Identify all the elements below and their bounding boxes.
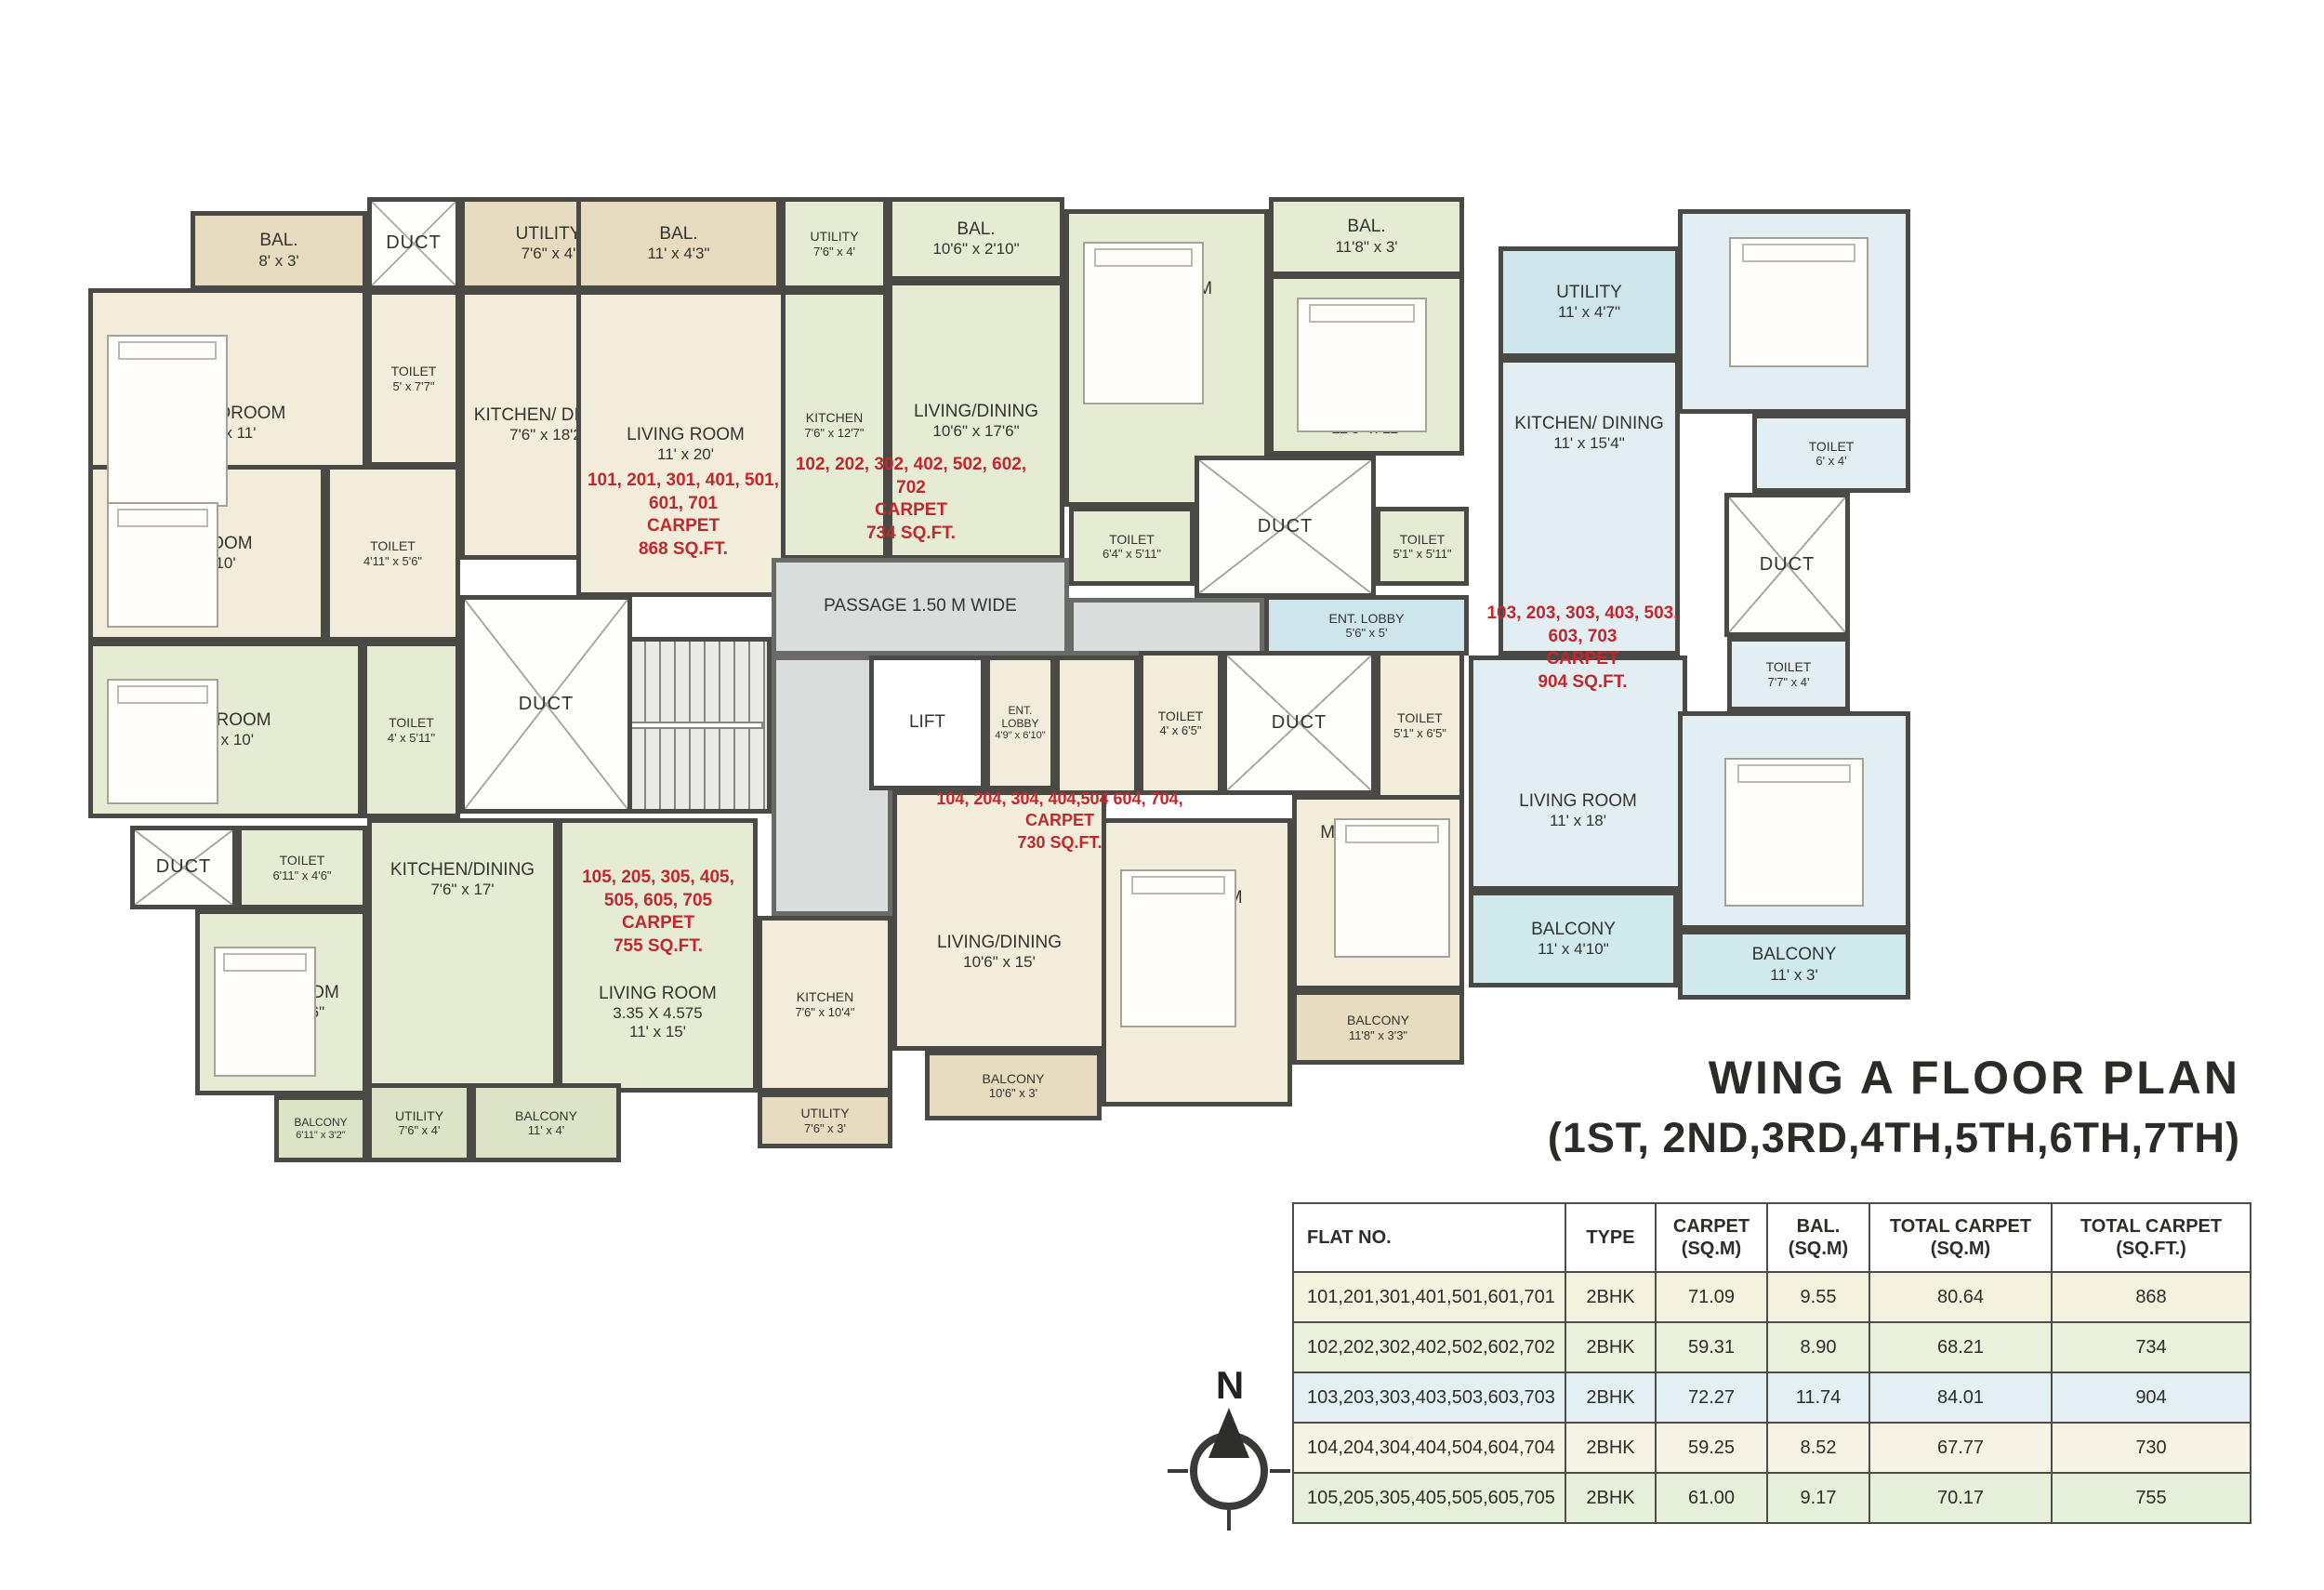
table-cell: 2BHK [1565, 1322, 1656, 1372]
room-dims: 7'6" x 17' [430, 881, 494, 899]
table-cell: 8.52 [1767, 1423, 1869, 1473]
bed-icon [1334, 818, 1450, 958]
table-row: 101,201,301,401,501,601,7012BHK71.099.55… [1293, 1272, 2251, 1322]
room-dims: 4'11" x 5'6" [363, 554, 422, 568]
room-toilet-104b: TOILET5'1" x 6'5" [1376, 651, 1464, 800]
room-dims: 10'6" x 3' [989, 1086, 1037, 1100]
room-label: DUCT [1272, 712, 1327, 735]
room-label: LIVING/DINING [914, 402, 1038, 422]
room-label: UTILITY [800, 1106, 849, 1121]
room-dims: 7'6" x 4' [399, 1123, 441, 1137]
room-lift: LIFT [869, 656, 985, 790]
room-label: UTILITY [1556, 283, 1622, 303]
room-toilet-101b: TOILET4'11" x 5'6" [325, 465, 460, 642]
room-label: BALCONY [294, 1116, 347, 1129]
flat-area-table: FLAT NO. TYPE CARPET(SQ.M) BAL.(SQ.M) TO… [1292, 1202, 2251, 1524]
bed-icon [1297, 298, 1427, 432]
floor-plan: BAL.8' x 3' DUCT UTILITY7'6" x 4' BAL.11… [0, 0, 2324, 1590]
header-line1: TOTAL CARPET [1890, 1216, 2031, 1237]
table-cell: 80.64 [1869, 1272, 2052, 1322]
table-cell: 904 [2052, 1372, 2251, 1423]
room-label: TOILET [1400, 532, 1446, 548]
room-dims: 4' x 5'11" [388, 731, 435, 745]
table-row: 105,205,305,405,505,605,7052BHK61.009.17… [1293, 1473, 2251, 1523]
room-label: LIVING ROOM [627, 425, 745, 445]
room-label: TOILET [280, 853, 325, 868]
table-cell: 59.31 [1656, 1322, 1767, 1372]
room-living-101: LIVING ROOM11' x 20' [576, 290, 795, 597]
room-dims: 11' x 4'10" [1538, 940, 1608, 959]
compass-tick [1270, 1469, 1290, 1473]
table-cell: 72.27 [1656, 1372, 1767, 1423]
table-cell: 61.00 [1656, 1473, 1767, 1523]
room-dims: 11' x 4' [528, 1123, 564, 1137]
room-dims: 7'6" x 12'7" [804, 426, 864, 440]
room-label: TOILET [1158, 709, 1204, 724]
room-passage: PASSAGE 1.50 M WIDE [772, 558, 1069, 656]
room-label: BAL. [1347, 217, 1385, 237]
room-label: KITCHEN/DINING [390, 860, 535, 881]
room-dims: 11' x 3' [1770, 966, 1818, 985]
table-cell: 101,201,301,401,501,601,701 [1293, 1272, 1565, 1322]
room-dims: 3.35 X 4.575 [613, 1004, 702, 1023]
room-balcony-103b: BALCONY11' x 3' [1678, 930, 1910, 1000]
room-label: UTILITY [395, 1108, 443, 1124]
room-dims: 6'11" x 4'6" [272, 868, 331, 882]
room-dims: 11' x 15'4" [1553, 434, 1624, 453]
table-cell: 84.01 [1869, 1372, 2052, 1423]
duct-103: DUCT [1724, 493, 1850, 637]
room-label: UTILITY [810, 229, 858, 245]
room-living-102: LIVING/DINING10'6" x 17'6" [888, 281, 1064, 560]
room-dims: 6' x 4' [1816, 454, 1846, 468]
header-line2: (SQ.M) [1662, 1238, 1761, 1260]
table-row: 104,204,304,404,504,604,7042BHK59.258.52… [1293, 1423, 2251, 1473]
room-toilet-105b: TOILET6'11" x 4'6" [237, 826, 367, 909]
table-cell: 8.90 [1767, 1322, 1869, 1372]
room-living-104: LIVING/DINING10'6" x 15' [892, 790, 1106, 1051]
header-line1: CARPET [1673, 1216, 1750, 1237]
room-dims: 11' x 18' [1550, 812, 1606, 830]
room-label: TOILET [1397, 710, 1443, 726]
room-dims: 5'1" x 5'11" [1393, 547, 1451, 561]
table-row: 103,203,303,403,503,603,7032BHK72.2711.7… [1293, 1372, 2251, 1423]
room-utility-105: UTILITY7'6" x 4' [367, 1083, 471, 1162]
room-label: DUCT [1258, 516, 1314, 538]
room-passage-ext [1069, 598, 1264, 656]
table-cell: 105,205,305,405,505,605,705 [1293, 1473, 1565, 1523]
table-cell: 868 [2052, 1272, 2251, 1322]
room-toilet-102c: TOILET5'1" x 5'11" [1376, 507, 1469, 586]
room-dims: 4' x 6'5" [1160, 723, 1202, 737]
room-label: BALCONY [1347, 1013, 1409, 1028]
table-row: 102,202,302,402,502,602,7022BHK59.318.90… [1293, 1322, 2251, 1372]
bed-icon [107, 335, 228, 507]
room-balcony-104a: BALCONY10'6" x 3' [925, 1051, 1102, 1120]
table-header-cell: BAL.(SQ.M) [1767, 1203, 1869, 1272]
room-balcony-105b: BALCONY11' x 4' [471, 1083, 621, 1162]
room-dims: 7'6" x 4' [522, 245, 576, 263]
duct-104: DUCT [1222, 651, 1376, 795]
room-label: TOILET [389, 715, 434, 731]
table-cell: 70.17 [1869, 1473, 2052, 1523]
room-dims: 6'4" x 5'11" [1103, 547, 1161, 561]
room-label: BALCONY [1531, 920, 1616, 940]
room-label: KITCHEN [797, 989, 853, 1005]
room-label: BAL. [957, 219, 995, 240]
room-toilet-103b: TOILET7'7" x 4' [1727, 637, 1850, 711]
header-line2: (SQ.M) [1876, 1238, 2045, 1260]
room-kitchen-102: KITCHEN7'6" x 12'7" [781, 290, 888, 560]
room-balcony-102-living: BAL.10'6" x 2'10" [888, 197, 1064, 281]
header-line1: FLAT NO. [1307, 1227, 1392, 1248]
room-label: BAL. [259, 231, 297, 251]
room-label: DUCT [519, 694, 574, 716]
room-label: LIVING/DINING [937, 933, 1062, 953]
room-dims: 7'6" x 10'4" [795, 1005, 854, 1019]
table-cell: 9.55 [1767, 1272, 1869, 1322]
bed-icon [214, 947, 316, 1077]
table-cell: 68.21 [1869, 1322, 2052, 1372]
table-cell: 103,203,303,403,503,603,703 [1293, 1372, 1565, 1423]
room-dims: 7'6" x 4' [813, 245, 855, 258]
table-cell: 2BHK [1565, 1473, 1656, 1523]
page-subtitle: (1ST, 2ND,3RD,4TH,5TH,6TH,7TH) [1394, 1114, 2240, 1162]
table-cell: 104,204,304,404,504,604,704 [1293, 1423, 1565, 1473]
room-living-105: LIVING ROOM3.35 X 4.57511' x 15' [558, 818, 758, 1093]
room-ent-lobby-103: ENT. LOBBY5'6" x 5' [1264, 595, 1469, 656]
room-balcony-102-bedroom: BAL.11'8" x 3' [1269, 197, 1464, 276]
page-title: WING A FLOOR PLAN [1394, 1051, 2240, 1105]
header-line2: (SQ.FT.) [2058, 1238, 2244, 1260]
room-kitchen-104: KITCHEN7'6" x 10'4" [758, 916, 892, 1093]
table-header-cell: FLAT NO. [1293, 1203, 1565, 1272]
room-label: TOILET [1109, 532, 1155, 548]
bed-icon [107, 679, 218, 804]
room-balcony-101-top: BAL.8' x 3' [191, 211, 367, 290]
table-cell: 9.17 [1767, 1473, 1869, 1523]
table-header-cell: TOTAL CARPET(SQ.M) [1869, 1203, 2052, 1272]
room-label: LIFT [909, 712, 945, 733]
room-toilet-102b: TOILET6'4" x 5'11" [1069, 507, 1195, 586]
room-dims: 11' x 4'7" [1558, 303, 1620, 322]
table-header-cell: TOTAL CARPET(SQ.FT.) [2052, 1203, 2251, 1272]
table-cell: 11.74 [1767, 1372, 1869, 1423]
room-label: DUCT [156, 856, 212, 879]
room-label: LIVING ROOM [599, 984, 717, 1004]
room-dims: 11'8" x 3' [1335, 238, 1397, 257]
room-label: TOILET [1766, 659, 1812, 675]
table-cell: 67.77 [1869, 1423, 2052, 1473]
table-header-cell: TYPE [1565, 1203, 1656, 1272]
room-label: BALCONY [983, 1071, 1045, 1087]
room-dims: 10'6" x 17'6" [932, 422, 1019, 441]
bed-icon [107, 502, 218, 628]
bed-icon [1120, 869, 1236, 1027]
table-cell: 734 [2052, 1322, 2251, 1372]
bed-icon [1729, 237, 1868, 367]
compass-tick [1227, 1510, 1231, 1530]
room-kitchen-103: KITCHEN/ DINING11' x 15'4" [1499, 358, 1680, 656]
room-balcony-105a: BALCONY6'11" x 3'2" [274, 1095, 367, 1162]
room-label: DUCT [1760, 554, 1816, 576]
duct-101: DUCT [367, 197, 460, 290]
room-entry-104 [1055, 656, 1139, 795]
room-label: TOILET [391, 364, 437, 379]
header-line1: BAL. [1797, 1216, 1841, 1237]
room-dims: 7'7" x 4' [1768, 675, 1810, 689]
room-label: KITCHEN [806, 410, 863, 426]
header-line1: TYPE [1586, 1227, 1634, 1248]
duct-105b: DUCT [130, 826, 237, 909]
table-cell: 2BHK [1565, 1423, 1656, 1473]
north-arrow-icon [1208, 1408, 1249, 1458]
room-utility-103: UTILITY11' x 4'7" [1499, 246, 1680, 358]
room-dims: 5'6" x 5' [1346, 626, 1388, 640]
room-dims: 11' x 4'3" [647, 245, 709, 263]
header-line1: TOTAL CARPET [2080, 1216, 2222, 1237]
room-dims: 6'11" x 3'2" [296, 1130, 345, 1142]
room-dims2: 11' x 15' [629, 1023, 686, 1041]
room-balcony-103a: BALCONY11' x 4'10" [1469, 891, 1678, 987]
table-cell: 102,202,302,402,502,602,702 [1293, 1322, 1565, 1372]
room-ent-lobby-104: ENT. LOBBY4'9" x 6'10" [985, 656, 1055, 790]
room-label: LIVING ROOM [1519, 791, 1637, 812]
room-label: BALCONY [515, 1108, 577, 1124]
table-cell: 71.09 [1656, 1272, 1767, 1322]
room-toilet-105a: TOILET4' x 5'11" [363, 642, 460, 818]
room-toilet-103a: TOILET6' x 4' [1752, 414, 1910, 493]
room-balcony-101-living: BAL.11' x 4'3" [576, 197, 781, 290]
room-label: ENT. LOBBY [990, 704, 1050, 730]
duct-102: DUCT [1195, 456, 1376, 598]
room-label: ENT. LOBBY [1329, 611, 1405, 627]
room-label: TOILET [370, 538, 416, 554]
room-dims: 7'6" x 3' [804, 1121, 846, 1135]
room-label: PASSAGE 1.50 M WIDE [824, 596, 1017, 616]
room-label: KITCHEN/ DINING [1514, 414, 1663, 434]
room-kitchen-105: KITCHEN/DINING7'6" x 17' [367, 818, 558, 1093]
table-header-row: FLAT NO. TYPE CARPET(SQ.M) BAL.(SQ.M) TO… [1293, 1203, 2251, 1272]
header-line2: (SQ.M) [1774, 1238, 1863, 1260]
room-dims: 8' x 3' [258, 252, 298, 271]
room-living-103: LIVING ROOM11' x 18' [1469, 656, 1687, 891]
table-cell: 755 [2052, 1473, 2251, 1523]
room-dims: 11'8" x 3'3" [1349, 1028, 1407, 1042]
room-dims: 10'6" x 2'10" [932, 240, 1019, 258]
table-header-cell: CARPET(SQ.M) [1656, 1203, 1767, 1272]
room-dims: 4'9" x 6'10" [995, 730, 1045, 742]
table-cell: 730 [2052, 1423, 2251, 1473]
room-label: UTILITY [516, 224, 582, 245]
table-cell: 2BHK [1565, 1272, 1656, 1322]
room-utility-102: UTILITY7'6" x 4' [781, 197, 888, 290]
room-dims: 5'1" x 6'5" [1393, 726, 1446, 740]
duct-105a: DUCT [460, 595, 632, 814]
room-utility-104: UTILITY7'6" x 3' [758, 1093, 892, 1148]
table-cell: 59.25 [1656, 1423, 1767, 1473]
room-label: BALCONY [1752, 945, 1837, 965]
table-cell: 2BHK [1565, 1372, 1656, 1423]
room-label: TOILET [1809, 439, 1855, 455]
room-dims: 5' x 7'7" [393, 379, 435, 393]
room-label: BAL. [659, 224, 697, 245]
room-dims: 10'6" x 15' [963, 953, 1036, 972]
room-dims: 11' x 20' [657, 445, 714, 464]
room-label: DUCT [386, 232, 442, 255]
bed-icon [1724, 758, 1864, 907]
room-toilet-101a: TOILET5' x 7'7" [367, 290, 460, 467]
compass-north-label: N [1197, 1363, 1262, 1408]
room-toilet-104a: TOILET4' x 6'5" [1139, 651, 1222, 795]
compass-tick [1168, 1469, 1188, 1473]
bed-icon [1083, 242, 1204, 404]
